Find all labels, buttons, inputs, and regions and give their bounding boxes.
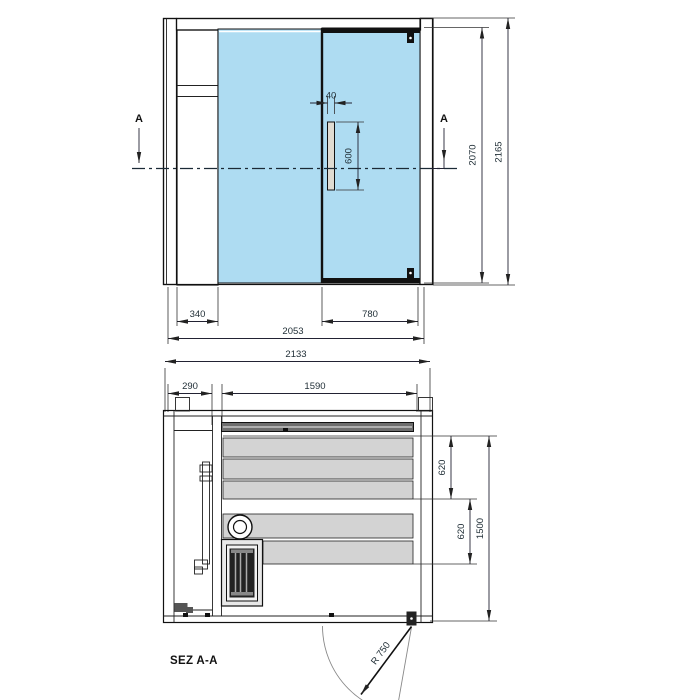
dim-door-height-label: 2070 [468, 144, 479, 165]
dim-door-height: 2070 [424, 28, 489, 284]
dim-door-width-label: 780 [362, 309, 378, 320]
dim-front-total-width: 2053 [168, 326, 424, 339]
plan-section-view: 2133 290 1590 [164, 349, 498, 700]
dim-bench-depth-upper: 620 [437, 436, 451, 499]
door-hinge-top-icon [407, 33, 414, 43]
door-hinge-bottom-icon [407, 268, 414, 278]
dim-side-panel-width: 340 [177, 309, 218, 322]
dim-interior-width: 1590 [222, 381, 417, 425]
door-swing: R 750 [323, 626, 412, 700]
sauna-technical-drawing: A A 40 600 2070 [0, 0, 700, 700]
dim-interior-depth: 1500 [475, 436, 489, 621]
dim-plan-total-width: 2133 [165, 349, 430, 412]
door-handle [328, 122, 335, 190]
dim-bench-depth-upper-label: 620 [437, 460, 448, 476]
drawing-svg: A A 40 600 2070 [0, 0, 700, 700]
dim-service-gap-label: 290 [182, 381, 198, 392]
bench-slat [223, 481, 413, 499]
dim-bench-depth-lower: 620 [456, 499, 470, 564]
dim-handle-width-label: 40 [326, 91, 337, 102]
dim-bench-depth-lower-label: 620 [456, 524, 467, 540]
dim-interior-depth-label: 1500 [475, 518, 486, 539]
dim-handle-length-label: 600 [344, 148, 355, 164]
front-elevation-view: A A 40 600 2070 [132, 18, 515, 344]
plan-door-hinge-icon [407, 612, 417, 626]
bench-slat [223, 459, 413, 479]
bench-back-rail [222, 423, 414, 432]
plan-right-extension-lines [413, 499, 497, 621]
dim-interior-width-label: 1590 [304, 381, 325, 392]
door-swing-arc [323, 626, 412, 700]
corner-post-left [176, 398, 190, 412]
section-marker-left-label: A [135, 113, 143, 125]
section-marker-left: A [135, 113, 143, 163]
fixed-glass-panel [218, 29, 322, 283]
dim-plan-total-width-label: 2133 [285, 349, 306, 360]
door-top-rail [322, 28, 420, 33]
sauna-heater [222, 540, 263, 607]
glass-door [322, 28, 420, 283]
pipe [195, 462, 213, 574]
dim-door-radius-label: R 750 [369, 640, 393, 667]
side-panel [177, 30, 218, 285]
bench-slat [263, 541, 413, 564]
dim-side-panel-width-label: 340 [190, 309, 206, 320]
section-marker-right-label: A [440, 113, 448, 125]
dim-front-total-width-label: 2053 [282, 326, 303, 337]
dim-total-height-label: 2165 [494, 141, 505, 162]
service-gap-wall [174, 416, 222, 616]
door-open-leaf-line [399, 627, 412, 700]
corner-connector [175, 603, 194, 613]
section-view-title: SEZ A-A [170, 655, 218, 667]
bench-slat [223, 438, 413, 457]
door-bottom-rail [322, 278, 420, 283]
right-frame-strip [420, 19, 433, 285]
dim-service-gap: 290 [168, 381, 212, 425]
dim-door-width: 780 [322, 309, 418, 322]
left-trim-strip [164, 19, 177, 285]
bucket-circle-icon [228, 515, 252, 539]
